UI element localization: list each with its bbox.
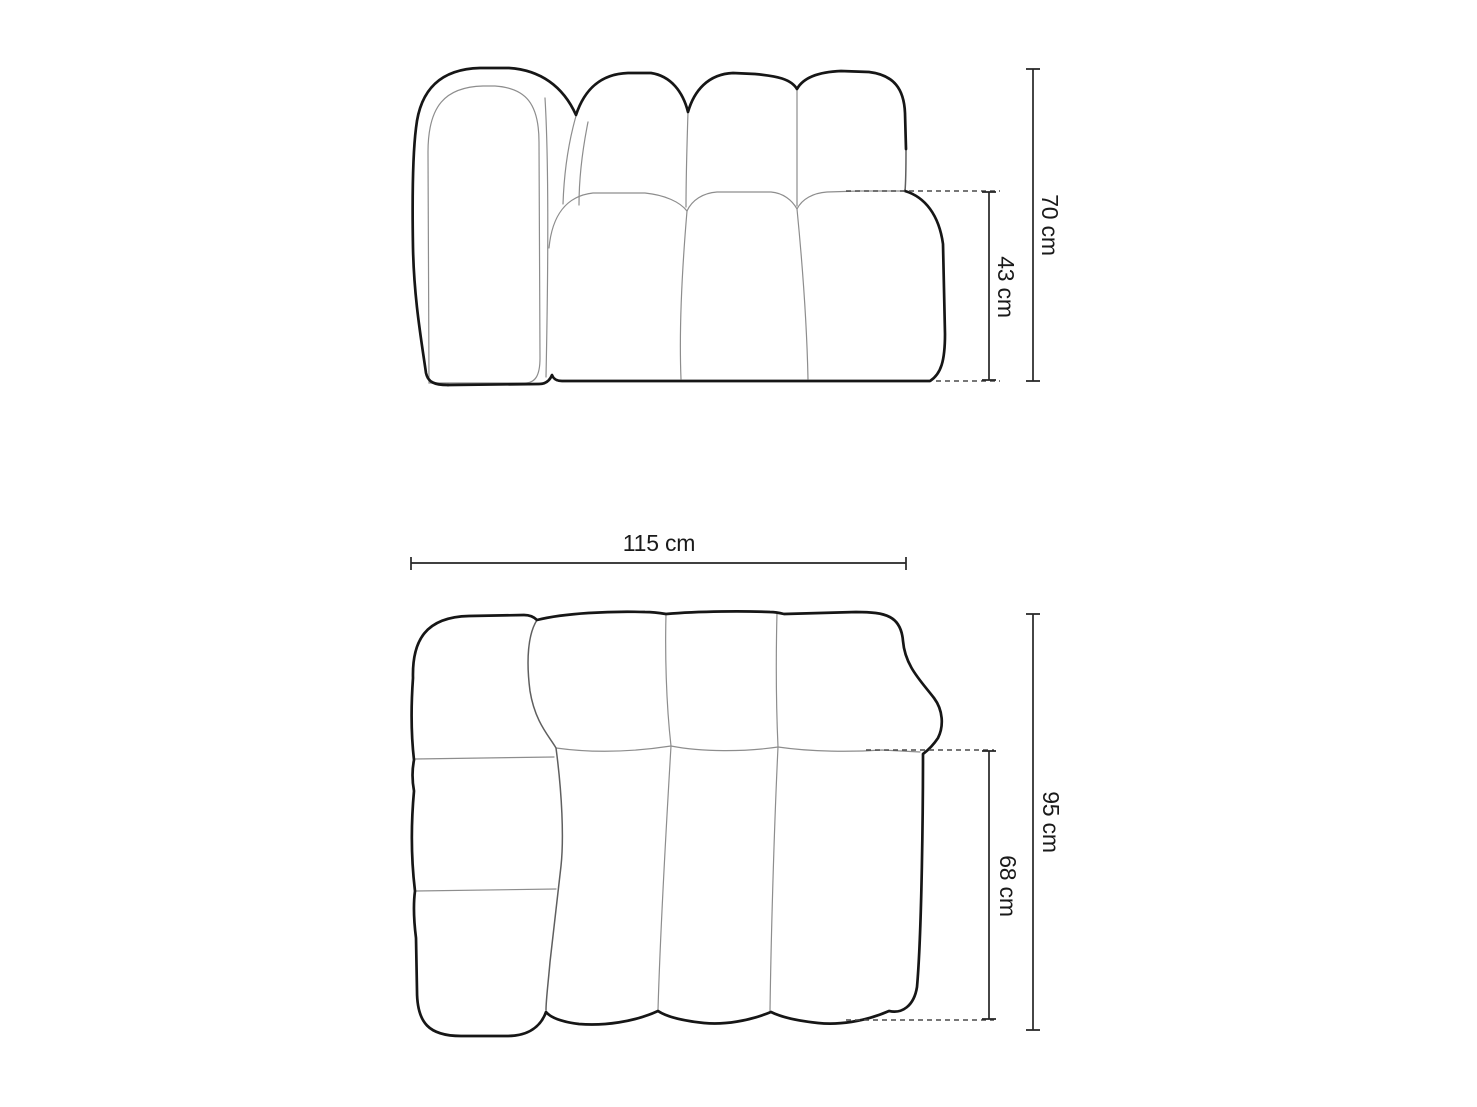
back-cushion1-left-edge [579,122,588,205]
front-silhouette-upper [413,68,906,385]
total-width-label: 115 cm [623,530,696,556]
front-view-dimension-lines [982,69,1040,381]
back-cushion-seam-1 [686,112,688,207]
seat-cushion-seam-2 [797,209,808,379]
armrest-inner-outline [428,86,540,383]
seat-cushion3-arch [797,191,904,209]
total-width-dimension-line [411,557,906,570]
armrest-cusp-seam [563,116,576,204]
front-view-outline [413,68,945,385]
top-view-extension-lines [846,750,994,1020]
armrest-boundary-seam [528,620,562,1010]
back-right-edge-seam [905,149,906,191]
seat-height-label: 43 cm [993,256,1019,318]
total-height-label: 70 cm [1037,194,1063,256]
seat-cushion-seam-1 [680,211,687,379]
dimension-diagram-page: 70 cm 43 cm [0,0,1477,1107]
top-view-outline [412,611,942,1036]
top-silhouette [412,611,942,1036]
seat-depth-label: 68 cm [995,855,1021,917]
front-view-drawing: 70 cm 43 cm [413,68,1063,385]
sofa-dimension-drawing: 70 cm 43 cm [0,0,1477,1107]
total-depth-label: 95 cm [1038,791,1064,853]
seat-column-seam-1 [658,746,671,1010]
top-view-drawing: 115 cm 95 cm 68 cm [411,530,1064,1036]
front-silhouette-lower [448,191,945,385]
seat-cushion2-arch [687,192,797,211]
top-view-seam-lines [415,613,920,1011]
total-depth-dimension-line [1026,614,1040,1030]
armrest-cell-seam-1 [415,757,554,759]
front-view-extension-lines [846,191,1000,381]
backrow-bottom-seam [556,746,920,752]
armrest-cell-seam-2 [416,889,556,891]
seat-cushion1-arch [549,193,687,248]
armrest-side-seam [545,98,548,377]
top-view-dimension-lines [411,557,1040,1030]
front-view-seam-lines [428,86,904,383]
back-cushion-seam-1-top [666,614,671,746]
seat-column-seam-2 [770,747,778,1011]
seat-depth-dimension-line [982,751,996,1019]
back-cushion-seam-2-top [776,613,778,747]
